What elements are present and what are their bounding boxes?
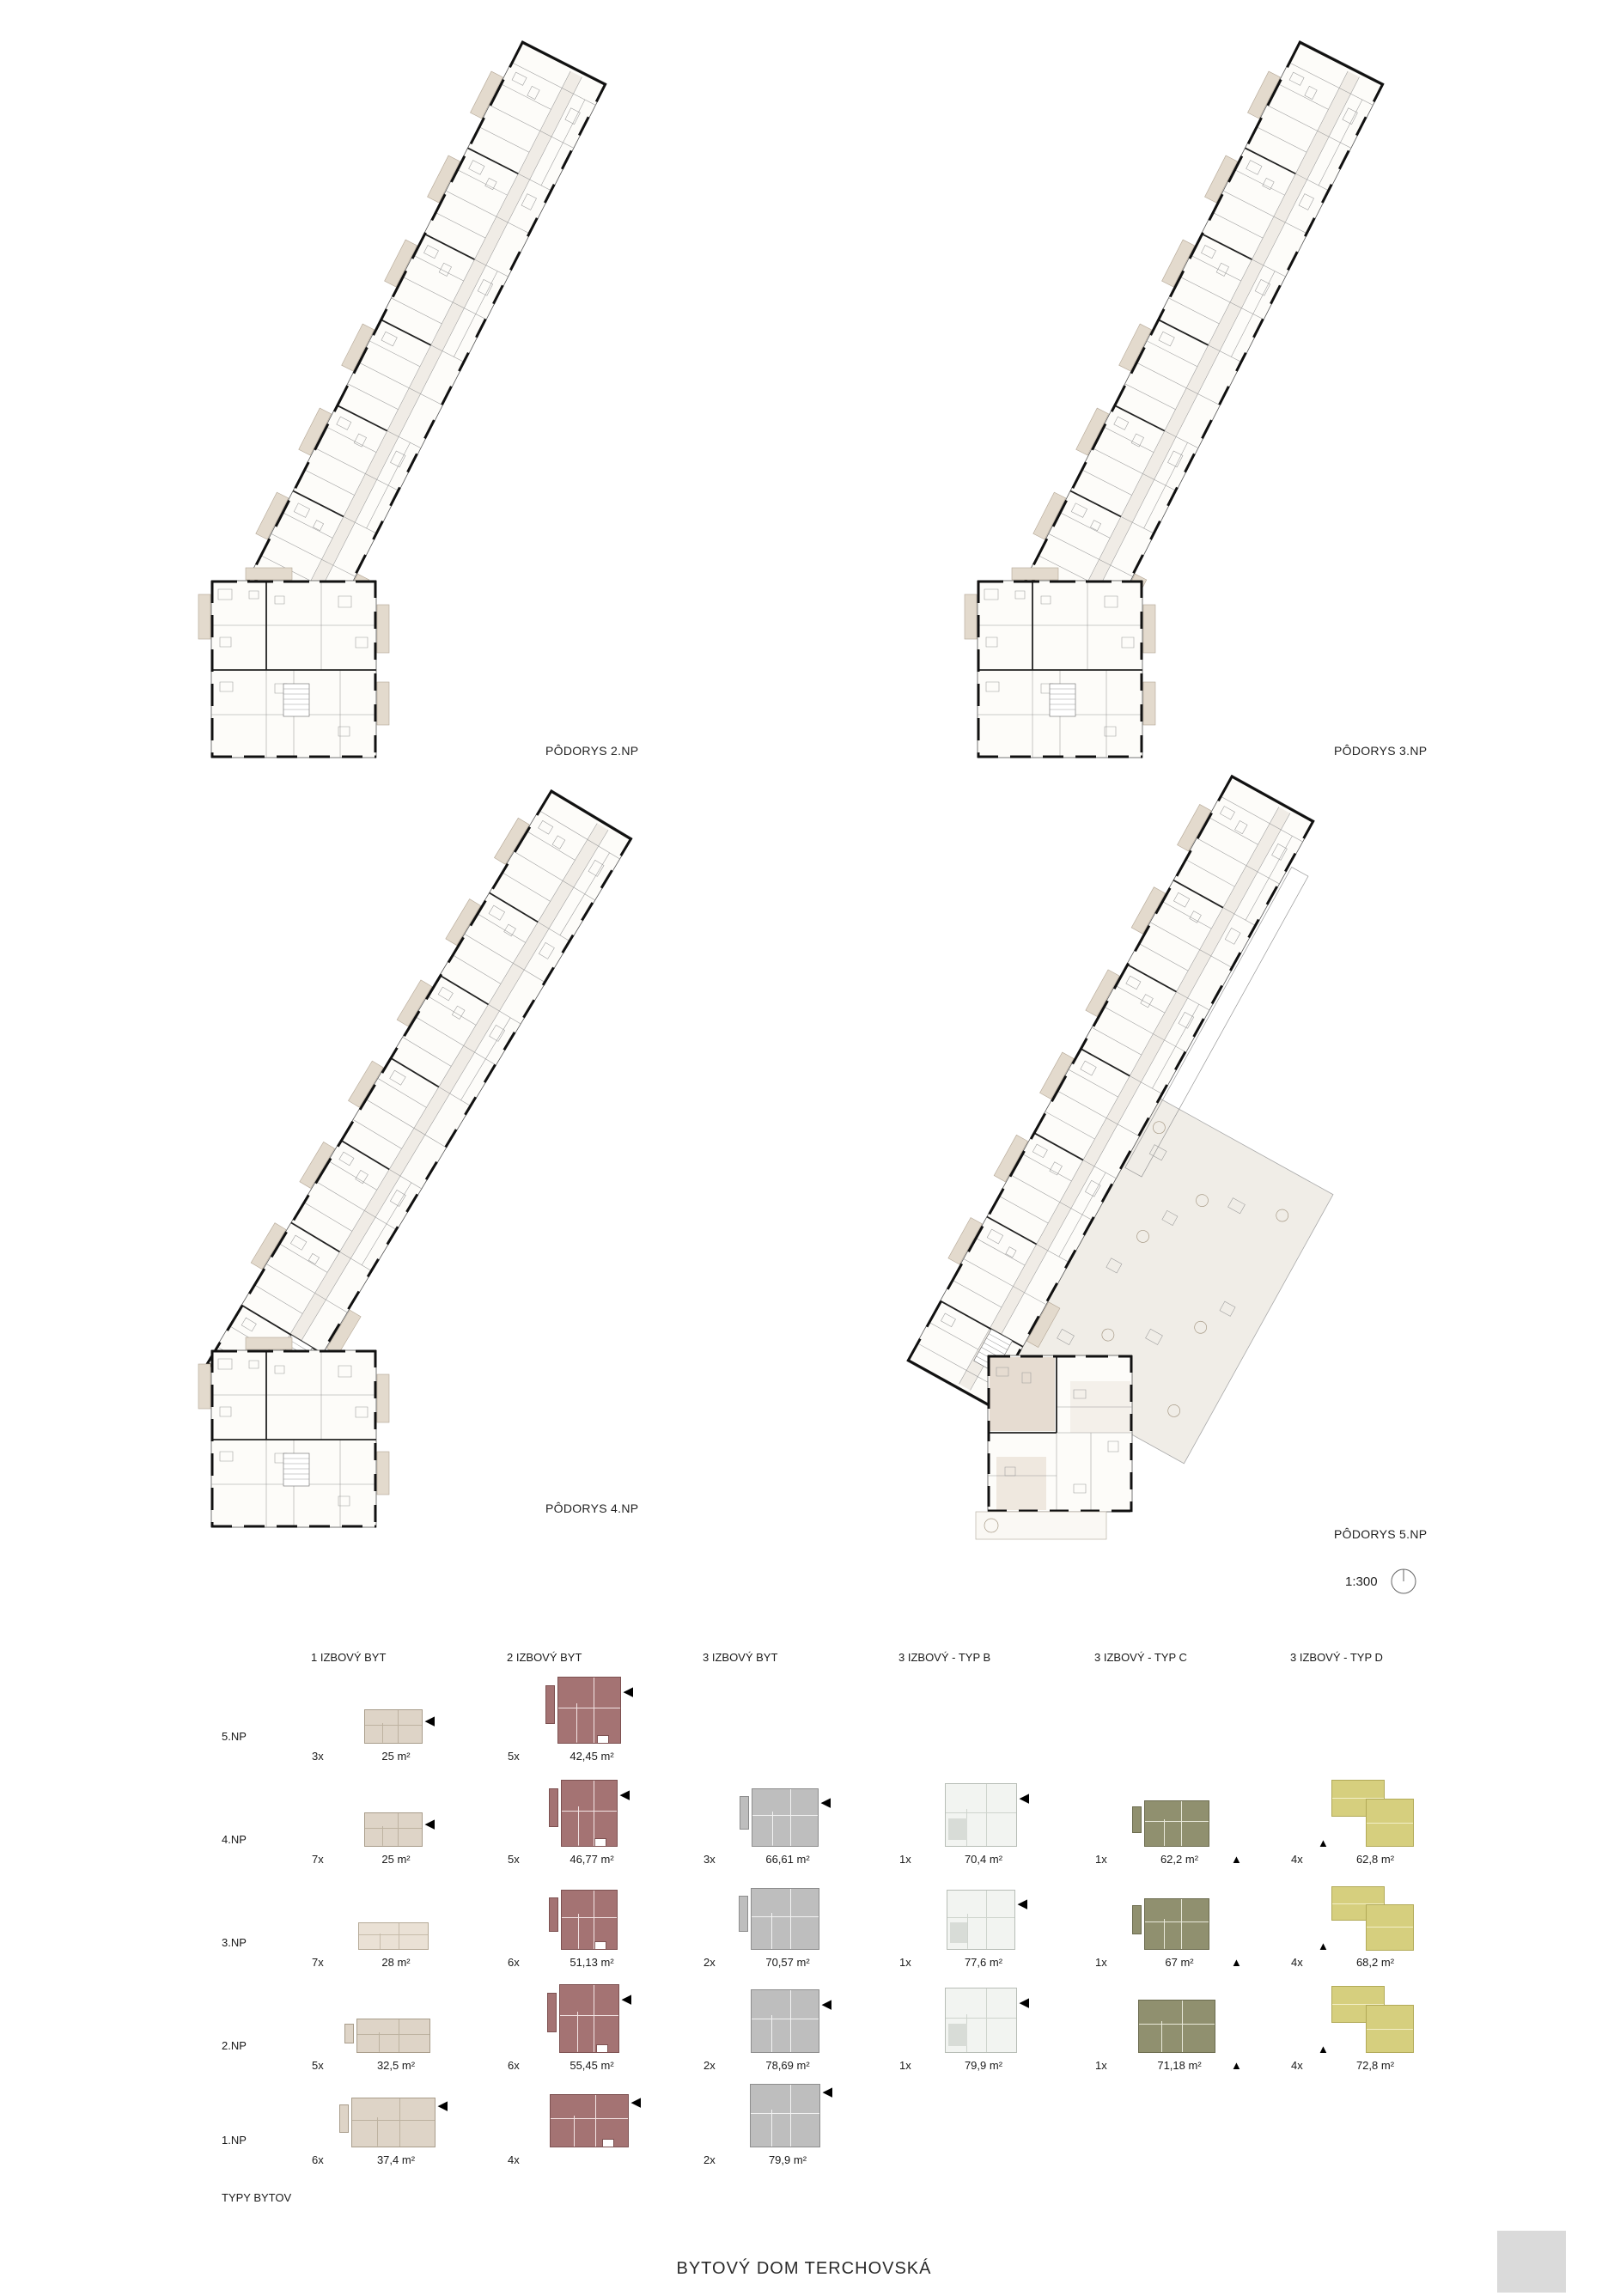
legend-cell: ◀ 3x 25 m² [309,1673,478,1765]
floor-row-label: 3.NP [213,1936,309,1971]
unit-area: 37,4 m² [355,2153,437,2167]
unit-stats: 7x 25 m² [307,1853,480,1867]
unit-stats: 4x [502,2153,676,2167]
unit-area: 25 m² [355,1750,437,1763]
unit-stats: 5x 42,45 m² [502,1750,676,1763]
legend-cell: ▲ 4x 72,8 m² [1288,1971,1457,2074]
unit-plan-thumbnail: ▲ [1331,1886,1414,1950]
sheet-title: BYTOVÝ DOM TERCHOVSKÁ [0,2259,1608,2279]
legend-column-header: 3 IZBOVÝ - TYP D [1288,1639,1484,1673]
floor-row-label: 5.NP [213,1730,309,1765]
floor-plan-5np [895,768,1488,1502]
ground-terrace [976,1512,1106,1539]
entrance-marker-icon: ◀ [1017,1897,1027,1910]
plan-caption-3np: PÔDORYS 3.NP [1334,744,1427,758]
unit-count: 1x [1095,1853,1138,1867]
legend-cell-empty [1093,2074,1261,2169]
door-notch [594,1838,606,1847]
unit-count: 1x [1095,2059,1138,2073]
unit-stats: 6x 37,4 m² [307,2153,480,2167]
entrance-marker-icon: ◀ [621,1993,631,2006]
legend-cell: 1x 62,2 m² ▲ [1093,1765,1261,1868]
unit-stats: 2x 79,9 m² [698,2153,872,2167]
unit-area: 68,2 m² [1334,1956,1416,1970]
floor-row-label: 2.NP [213,2039,309,2074]
legend-cell: ▲ 4x 68,2 m² [1288,1868,1457,1971]
north-marker-icon: ▲ [1231,1956,1242,1970]
unit-stats: 3x 25 m² [307,1750,480,1763]
unit-count: 6x [508,1956,551,1970]
floor-row-label: 4.NP [213,1833,309,1868]
unit-plan-thumbnail: ◀ [550,2094,629,2147]
door-notch [602,2139,614,2147]
room-patch [948,1818,966,1840]
unit-count: 5x [508,1750,551,1763]
legend-section-label: TYPY BYTOV [213,2169,505,2212]
unit-count: 7x [312,1853,355,1867]
legend-column-header: 3 IZBOVÝ - TYP B [897,1639,1093,1673]
stair-core-plan-4np [198,1337,389,1527]
legend-cell: ◀ 1x 70,4 m² [897,1765,1065,1868]
unit-area: 79,9 m² [942,2059,1025,2073]
unit-plan-thumbnail [1144,1898,1209,1950]
unit-stats: 2x 78,69 m² [698,2059,872,2073]
legend-cell-empty [1093,1673,1261,1765]
unit-area: 79,9 m² [746,2153,829,2167]
unit-count: 5x [312,2059,355,2073]
legend-cell: ◀ 2x 79,9 m² [701,2074,869,2169]
unit-count: 1x [1095,1956,1138,1970]
floor-row-label: 1.NP [213,2134,309,2169]
plan-caption-4np: PÔDORYS 4.NP [545,1501,638,1515]
door-notch [594,1941,606,1950]
unit-plan-thumbnail: ▲ [1331,1986,1414,2053]
legend-cell: ◀ 1x 77,6 m² [897,1868,1065,1971]
balcony-strip [339,2104,349,2133]
entrance-marker-icon: ◀ [1019,1996,1029,2009]
entrance-marker-icon: ◀ [424,1818,435,1830]
unit-count: 4x [508,2153,551,2167]
unit-stats: 7x 28 m² [307,1956,480,1970]
entrance-marker-icon: ◀ [424,1714,435,1727]
legend-cell: 1x 67 m² ▲ [1093,1868,1261,1971]
unit-count: 2x [703,2153,746,2167]
legend-column-header: 2 IZBOVÝ BYT [505,1639,701,1673]
scale-block: 1:300 [1345,1567,1418,1596]
entrance-marker-icon: ◀ [623,1685,633,1698]
plan-caption-5np: PÔDORYS 5.NP [1334,1527,1427,1541]
unit-plan-thumbnail: ◀ [364,1709,423,1744]
unit-stats: 3x 66,61 m² [698,1853,872,1867]
legend-cell: ◀ 3x 66,61 m² [701,1765,869,1868]
logo-placeholder [1497,2231,1566,2293]
legend-cell: ◀ 5x 46,77 m² [505,1765,673,1868]
stair-core-plan-3np [965,568,1155,758]
unit-plan-thumbnail: ◀ [559,1984,619,2053]
unit-area: 70,57 m² [746,1956,829,1970]
unit-plan-thumbnail [751,1888,819,1950]
unit-plan-thumbnail [1144,1800,1209,1847]
legend-cell: ◀ 6x 37,4 m² [309,2074,478,2169]
unit-area: 62,8 m² [1334,1853,1416,1867]
unit-area: 71,18 m² [1138,2059,1221,2073]
stair-core-plan-2np [198,568,389,758]
unit-count: 6x [312,2153,355,2167]
unit-plan-thumbnail: ◀ [945,1988,1017,2053]
unit-area: 72,8 m² [1334,2059,1416,2073]
unit-count: 5x [508,1853,551,1867]
unit-stats: 1x 71,18 m² ▲ [1090,2059,1264,2073]
room-patch [950,1922,967,1943]
legend-cell-empty [897,1673,1065,1765]
matrix-corner [213,1639,309,1673]
legend-cell: ▲ 4x 62,8 m² [1288,1765,1457,1868]
legend-cell: ◀ 7x 25 m² [309,1765,478,1868]
north-marker-icon: ▲ [1318,1940,1329,1952]
unit-count: 3x [703,1853,746,1867]
scale-value: 1:300 [1345,1574,1378,1589]
balcony-strip [549,1788,558,1827]
entrance-marker-icon: ◀ [822,2086,832,2098]
unit-stats: 1x 77,6 m² [894,1956,1068,1970]
unit-stats: 4x 68,2 m² [1286,1956,1459,1970]
unit-area: 25 m² [355,1853,437,1867]
unit-plan-wing [1366,1799,1414,1848]
unit-type-matrix: 1 IZBOVÝ BYT 2 IZBOVÝ BYT 3 IZBOVÝ BYT 3… [213,1639,1484,2212]
balcony-strip [549,1897,558,1932]
unit-plan-thumbnail: ◀ [945,1783,1017,1847]
legend-cell-empty [701,1673,869,1765]
legend-cell: 7x 28 m² [309,1868,478,1971]
stair-core-plan-5np [976,1355,1132,1539]
unit-stats: 5x 46,77 m² [502,1853,676,1867]
entrance-marker-icon: ◀ [821,1998,831,2011]
balcony-strip [740,1796,749,1830]
legend-column-header: 3 IZBOVÝ - TYP C [1093,1639,1288,1673]
unit-count: 4x [1291,2059,1334,2073]
unit-plan-wing [1366,1904,1414,1951]
unit-count: 4x [1291,1956,1334,1970]
door-notch [597,1735,609,1744]
unit-stats: 4x 62,8 m² [1286,1853,1459,1867]
unit-plan-thumbnail: ◀ [752,1788,819,1847]
balcony-strip [739,1896,748,1931]
legend-cell: ◀ 4x [505,2074,673,2169]
legend-cell: 5x 32,5 m² [309,1971,478,2074]
unit-area: 51,13 m² [551,1956,633,1970]
entrance-marker-icon: ◀ [437,2099,448,2112]
drawing-sheet: PÔDORYS 2.NP PÔDORYS 3.NP PÔDORYS 4.NP P… [0,0,1608,2296]
north-arrow-icon [1389,1567,1418,1596]
unit-area: 66,61 m² [746,1853,829,1867]
unit-plan-thumbnail: ▲ [1331,1780,1414,1847]
north-marker-icon: ▲ [1318,1837,1329,1848]
plan-caption-2np: PÔDORYS 2.NP [545,744,638,758]
unit-area: 67 m² [1138,1956,1221,1970]
unit-area: 77,6 m² [942,1956,1025,1970]
unit-count: 6x [508,2059,551,2073]
unit-area: 42,45 m² [551,1750,633,1763]
balcony-strip [1132,1905,1142,1934]
unit-plan-thumbnail: ◀ [364,1812,423,1847]
unit-stats: 1x 79,9 m² [894,2059,1068,2073]
unit-plan-thumbnail [356,2019,430,2053]
unit-stats: 5x 32,5 m² [307,2059,480,2073]
unit-plan-thumbnail [358,1922,429,1950]
unit-plan-thumbnail: ◀ [751,1989,819,2053]
entrance-marker-icon: ◀ [619,1788,630,1801]
balcony-strip [1132,1806,1142,1833]
unit-area: 55,45 m² [551,2059,633,2073]
unit-stats: 1x 62,2 m² ▲ [1090,1853,1264,1867]
legend-cell-empty [1288,2074,1457,2169]
north-marker-icon: ▲ [1231,2059,1242,2073]
unit-stats: 4x 72,8 m² [1286,2059,1459,2073]
north-marker-icon: ▲ [1231,1853,1242,1867]
unit-stats: 6x 55,45 m² [502,2059,676,2073]
unit-plan-wing [1366,2005,1414,2054]
unit-area: 32,5 m² [355,2059,437,2073]
unit-count: 2x [703,2059,746,2073]
unit-plan-thumbnail: ◀ [351,2098,435,2147]
legend-cell: ◀ 6x 55,45 m² [505,1971,673,2074]
legend-cell: 1x 71,18 m² ▲ [1093,1971,1261,2074]
unit-count: 3x [312,1750,355,1763]
unit-count: 1x [899,1956,942,1970]
unit-area: 62,2 m² [1138,1853,1221,1867]
balcony-strip [344,2024,354,2043]
legend-cell: 6x 51,13 m² [505,1868,673,1971]
unit-stats: 6x 51,13 m² [502,1956,676,1970]
entrance-marker-icon: ◀ [630,2096,641,2109]
unit-plan-thumbnail: ◀ [947,1890,1015,1950]
legend-column-header: 3 IZBOVÝ BYT [701,1639,897,1673]
unit-area: 46,77 m² [551,1853,633,1867]
legend-cell-empty [897,2074,1065,2169]
unit-count: 4x [1291,1853,1334,1867]
legend-cell: 2x 70,57 m² [701,1868,869,1971]
unit-stats: 2x 70,57 m² [698,1956,872,1970]
unit-stats: 1x 70,4 m² [894,1853,1068,1867]
unit-area: 70,4 m² [942,1853,1025,1867]
legend-cell: ◀ 5x 42,45 m² [505,1673,673,1765]
door-notch [596,2044,608,2053]
legend-cell: ◀ 2x 78,69 m² [701,1971,869,2074]
room-patch [948,2024,966,2046]
unit-count: 7x [312,1956,355,1970]
unit-plan-thumbnail: ◀ [750,2084,820,2147]
unit-plan-thumbnail: ◀ [557,1677,621,1744]
legend-cell-empty [1288,1673,1457,1765]
unit-stats: 1x 67 m² ▲ [1090,1956,1264,1970]
unit-area: 78,69 m² [746,2059,829,2073]
unit-count: 1x [899,1853,942,1867]
unit-area [551,2153,633,2167]
north-marker-icon: ▲ [1318,2043,1329,2055]
entrance-marker-icon: ◀ [820,1796,831,1809]
legend-cell: ◀ 1x 79,9 m² [897,1971,1065,2074]
legend-column-header: 1 IZBOVÝ BYT [309,1639,505,1673]
floor-plan-4np [194,783,643,1420]
balcony-strip [545,1685,555,1724]
entrance-marker-icon: ◀ [1019,1792,1029,1805]
balcony-strip [547,1993,557,2032]
unit-plan-thumbnail: ◀ [561,1780,618,1847]
unit-plan-thumbnail [561,1890,618,1950]
unit-plan-thumbnail [1138,2000,1215,2053]
unit-area: 28 m² [355,1956,437,1970]
unit-count: 2x [703,1956,746,1970]
unit-count: 1x [899,2059,942,2073]
